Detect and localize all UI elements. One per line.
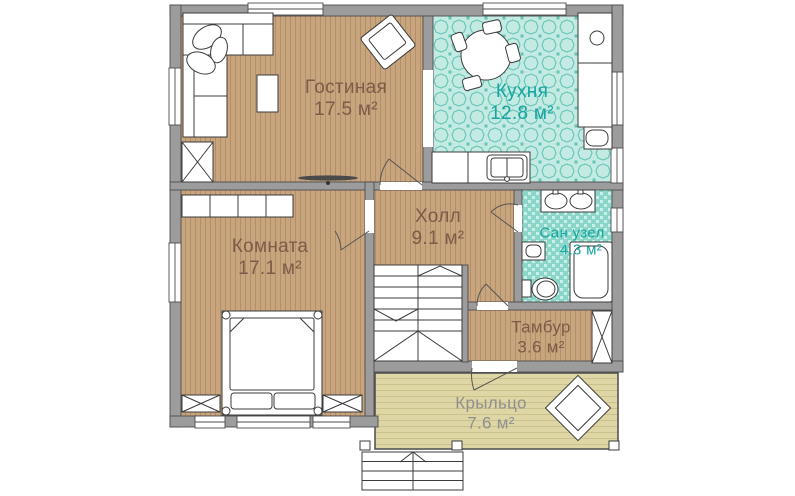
window-right-kitchen-2 <box>611 148 623 183</box>
opening-living-hall <box>380 182 422 190</box>
room-name: Холл <box>412 206 465 228</box>
kitchen-cabinet-top-right <box>578 13 612 63</box>
opening-porch-door <box>472 361 517 372</box>
room-name: Комната <box>232 236 309 258</box>
nightstand-left <box>182 395 220 412</box>
coffee-table <box>257 75 278 112</box>
kitchen-counter-right <box>578 63 612 127</box>
room-label-vestibule: Тамбур 3.6 м² <box>511 317 571 356</box>
toilet <box>522 278 558 300</box>
window-bottom-3 <box>313 416 350 428</box>
floor-plan: Гостиная 17.5 м² Кухня 12.8 м² Комната 1… <box>0 0 795 496</box>
room-label-porch: Крыльцо 7.6 м² <box>455 393 526 432</box>
kitchen-sink <box>487 155 527 181</box>
room-label-living: Гостиная 17.5 м² <box>305 77 387 121</box>
room-label-hall: Холл 9.1 м² <box>412 206 465 250</box>
window-right-bathroom <box>611 208 623 232</box>
window-top-kitchen <box>483 3 566 15</box>
room-label-bathroom: Сан узел 4.3 м² <box>540 225 605 260</box>
nightstand-right <box>323 395 362 412</box>
wall-stairs-side <box>462 265 468 362</box>
room-name: Кухня <box>490 81 554 103</box>
room-area: 17.1 м² <box>232 258 309 280</box>
wardrobe <box>182 195 293 217</box>
dining-table <box>461 30 511 80</box>
room-area: 4.3 м² <box>558 242 605 259</box>
window-left-living <box>169 68 181 125</box>
opening-living-kitchen <box>423 70 433 147</box>
floor-plan-drawing <box>0 0 795 496</box>
room-area: 12.8 м² <box>490 103 554 125</box>
room-label-kitchen: Кухня 12.8 м² <box>490 81 554 125</box>
room-name: Крыльцо <box>455 393 526 413</box>
window-left-bedroom <box>169 243 181 302</box>
window-bottom-1 <box>195 416 225 428</box>
opening-bedroom-door <box>365 200 374 233</box>
window-bottom-2 <box>237 416 310 428</box>
room-name: Сан узел <box>540 225 605 242</box>
room-area: 17.5 м² <box>305 99 387 121</box>
opening-bathroom-door <box>514 205 522 232</box>
room-area: 9.1 м² <box>412 228 465 250</box>
window-right-kitchen-1 <box>611 72 623 125</box>
entry-steps <box>362 452 463 490</box>
room-name: Тамбур <box>511 317 571 337</box>
staircase <box>374 265 462 361</box>
bed <box>222 311 322 415</box>
vestibule-closet <box>592 311 612 363</box>
room-name: Гостиная <box>305 77 387 99</box>
opening-vestibule-door <box>477 302 508 310</box>
tv-cabinet <box>182 142 213 182</box>
room-label-bedroom: Комната 17.1 м² <box>232 236 309 280</box>
vanity-double-sink <box>541 190 595 212</box>
room-area: 7.6 м² <box>455 413 526 433</box>
room-area: 3.6 м² <box>511 337 571 357</box>
kitchen-fridge <box>584 127 612 149</box>
